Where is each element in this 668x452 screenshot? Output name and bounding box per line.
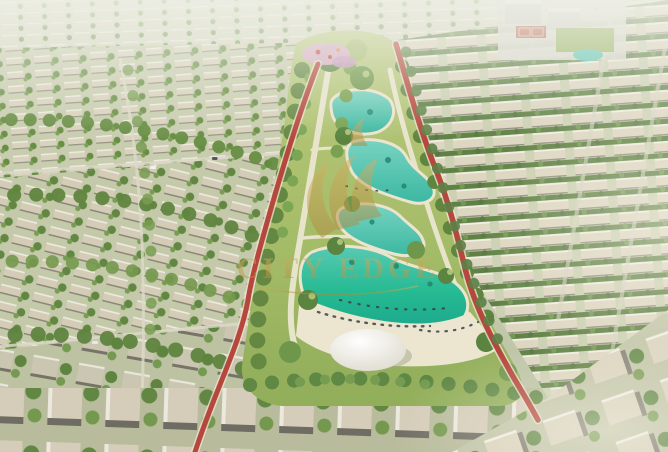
watermark-brand-text: CITY EDGE bbox=[237, 252, 439, 285]
aerial-render: CITY EDGE bbox=[0, 0, 668, 452]
aerial-render-canvas: CITY EDGE bbox=[0, 0, 668, 452]
